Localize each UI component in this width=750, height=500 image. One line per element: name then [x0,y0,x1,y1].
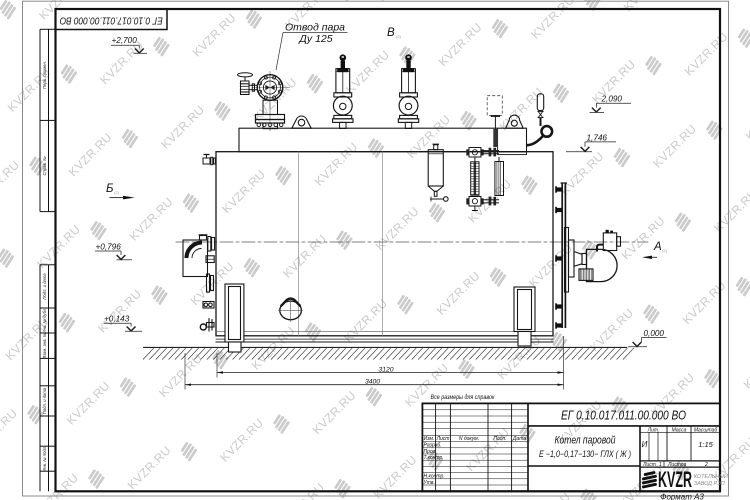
svg-text:Лист: Лист [436,436,450,442]
svg-text:И: И [642,440,648,449]
svg-text:Справ. №: Справ. № [42,156,47,175]
svg-text:3120: 3120 [378,366,393,373]
svg-text:Н.контр.: Н.контр. [424,474,445,480]
svg-text:Подп.: Подп. [493,436,506,442]
svg-text:Утв.: Утв. [424,480,435,486]
svg-text:+2,700: +2,700 [112,36,138,45]
svg-text:Масса: Масса [672,427,687,433]
svg-text:3400: 3400 [365,378,380,385]
svg-text:1:15: 1:15 [698,440,713,449]
svg-text:Пров.: Пров. [424,449,437,455]
svg-text:ЗАВОД РЭП: ЗАВОД РЭП [694,481,725,487]
svg-text:Дата: Дата [512,436,526,442]
svg-text:2,090: 2,090 [601,95,623,104]
svg-text:Б: Б [106,183,114,195]
svg-text:Инв. № подл.: Инв. № подл. [42,446,47,472]
svg-text:Взам. инв. №: Взам. инв. № [42,332,47,358]
svg-text:KVZR: KVZR [658,467,692,492]
svg-text:В: В [387,27,395,39]
svg-text:Перв. примен.: Перв. примен. [42,61,47,89]
svg-text:Котел паровой: Котел паровой [555,435,616,447]
svg-text:Отвод пара: Отвод пара [285,22,345,34]
svg-text:Масштаб: Масштаб [694,427,718,433]
svg-text:Ду 125: Ду 125 [298,33,332,45]
svg-text:(2): (2) [114,190,120,195]
svg-text:ЕГ 0.10.017.011.00.000 ВО: ЕГ 0.10.017.011.00.000 ВО [561,408,686,423]
svg-text:Подп. и дата: Подп. и дата [42,387,47,414]
svg-text:А: А [653,241,662,253]
svg-text:2: 2 [704,462,708,468]
svg-text:Лит.: Лит. [647,427,660,433]
svg-text:0,000: 0,000 [644,329,665,338]
svg-text:Изм.: Изм. [424,436,435,442]
svg-text:N докум.: N докум. [459,436,479,442]
svg-text:Формат А3: Формат А3 [660,493,704,500]
svg-text:+0,796: +0,796 [96,242,122,251]
svg-text:1,746: 1,746 [587,133,608,142]
svg-text:Разраб.: Разраб. [424,443,442,449]
svg-text:КОТЕЛЬНЫЙ: КОТЕЛЬНЫЙ [694,472,728,480]
svg-text:ЕГ 0.10.017.011.00.000 ВО: ЕГ 0.10.017.011.00.000 ВО [60,14,163,25]
svg-text:(2): (2) [396,34,402,39]
svg-text:Подп. и дата: Подп. и дата [42,273,47,300]
svg-text:Инв. № дубл.: Инв. № дубл. [42,308,47,334]
svg-text:Лист: Лист [642,462,656,468]
svg-text:Все размеры для справок: Все размеры для справок [431,393,496,401]
svg-text:Т.контр.: Т.контр. [424,455,444,461]
svg-text:+0,143: +0,143 [104,315,130,324]
svg-text:(2): (2) [662,248,668,253]
svg-text:Е −1,0−0,17−130− ГЛХ ( Ж ): Е −1,0−0,17−130− ГЛХ ( Ж ) [539,449,631,459]
